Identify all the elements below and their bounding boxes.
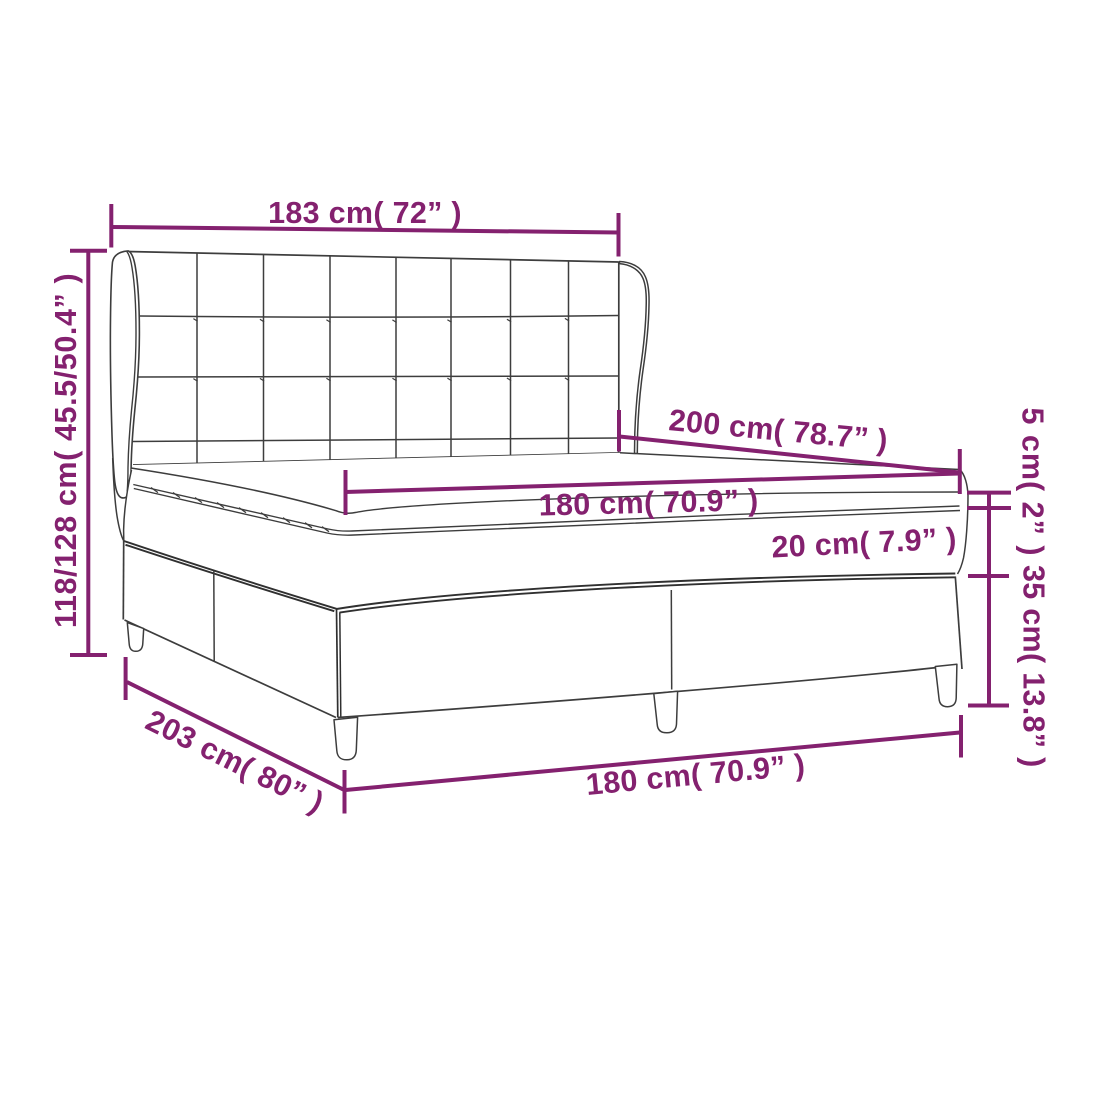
- svg-text:180 cm( 70.9” ): 180 cm( 70.9” ): [538, 483, 759, 522]
- svg-text:5 cm( 2” ): 5 cm( 2” ): [1016, 408, 1050, 557]
- svg-text:35 cm( 13.8” ): 35 cm( 13.8” ): [1017, 565, 1051, 768]
- svg-text:183 cm( 72” ): 183 cm( 72” ): [268, 196, 462, 230]
- svg-text:118/128 cm( 45.5/50.4” ): 118/128 cm( 45.5/50.4” ): [49, 273, 83, 628]
